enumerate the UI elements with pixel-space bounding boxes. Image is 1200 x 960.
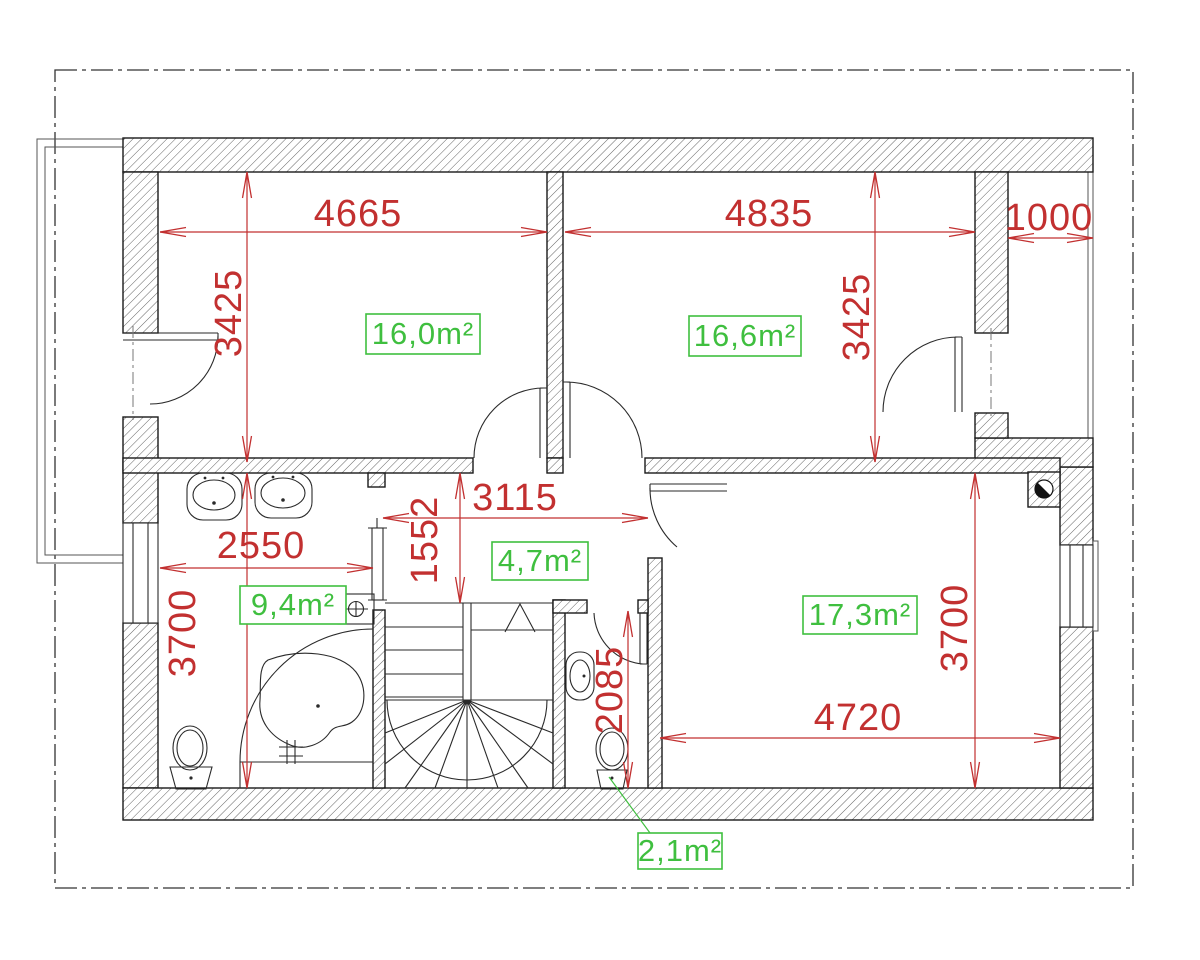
wall-hall-top-stub xyxy=(547,458,563,473)
floor-plan-drawing: 4665 4835 1000 3425 3425 3115 1552 2550 … xyxy=(0,0,1200,960)
window-living xyxy=(1060,541,1098,631)
room-bathroom xyxy=(160,473,373,788)
staircase xyxy=(385,603,553,788)
wall-hall-top-left xyxy=(123,458,473,473)
window-bathroom xyxy=(123,523,158,623)
wall-bottom xyxy=(123,788,1093,820)
wall-loggia-lower xyxy=(975,413,1008,438)
wall-right-lower xyxy=(1060,627,1093,788)
room-wc xyxy=(565,613,648,788)
wall-right-upper xyxy=(1060,467,1093,545)
room-bedroom-1 xyxy=(160,172,547,458)
wall-top xyxy=(123,138,1093,172)
room-loggia xyxy=(1008,172,1088,438)
wall-left-lower xyxy=(123,623,158,788)
wall-stair-wc xyxy=(553,600,565,788)
wall-hall-top-right xyxy=(645,458,1060,473)
room-bedroom-2 xyxy=(563,172,975,458)
room-hall xyxy=(385,473,648,603)
room-balcony xyxy=(45,148,123,555)
stairs-direction-arrow xyxy=(505,604,535,632)
wall-left-upper xyxy=(123,172,158,333)
wall-wc-living xyxy=(648,558,662,788)
wall-loggia-upper xyxy=(975,172,1008,333)
floor-plan-page: 4665 4835 1000 3425 3425 3115 1552 2550 … xyxy=(0,0,1200,960)
area-label-wc: 2,1m² xyxy=(638,833,722,868)
wall-between-bedrooms xyxy=(547,172,563,458)
wall-bath-stair xyxy=(373,610,385,788)
room-living xyxy=(662,473,1060,788)
